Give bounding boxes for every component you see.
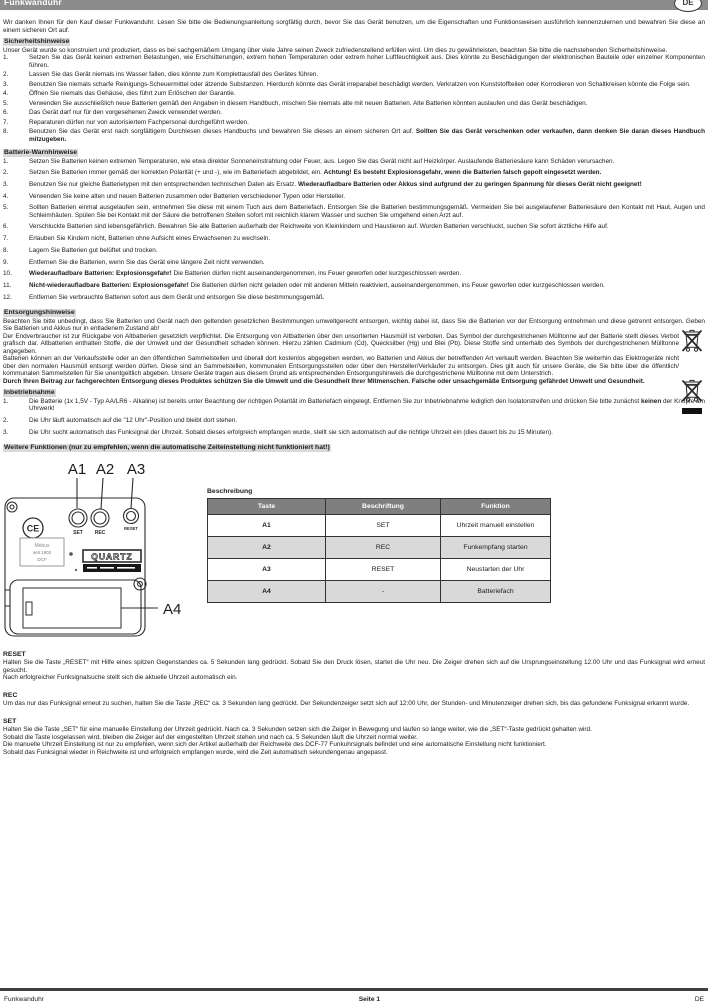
table-row: A2 REC Funkempfang starten bbox=[208, 537, 551, 559]
list-text: Das Gerät darf nur für den vorgesehenen … bbox=[29, 109, 705, 117]
list-text: Nicht-wiederaufladbare Batterien: Explos… bbox=[29, 282, 705, 290]
set-paragraph-1: Halten Sie die Taste „SET“ für eine manu… bbox=[3, 726, 705, 734]
battery-heading: Batterie-Warnhinweise bbox=[3, 149, 78, 157]
text-segment-bold: keinen bbox=[641, 398, 661, 405]
description-table-block: Beschreibung Taste Beschriftung Funktion… bbox=[207, 488, 551, 642]
table-cell: REC bbox=[326, 537, 441, 559]
text-segment: Setzen Sie das Gerät keinen extremen Bel… bbox=[29, 54, 705, 69]
text-segment-bold: Wiederaufladbare Batterien: Explosionsge… bbox=[29, 270, 172, 277]
list-item: 10.Wiederaufladbare Batterien: Explosion… bbox=[3, 270, 705, 278]
table-header-row: Taste Beschriftung Funktion bbox=[208, 499, 551, 515]
list-item: 2.Setzen Sie Batterien immer gemäß der k… bbox=[3, 169, 705, 177]
table-header-cell: Beschriftung bbox=[326, 499, 441, 515]
list-item: 4.Verwenden Sie keine alten und neuen Ba… bbox=[3, 193, 705, 201]
text-segment: Die Batterien dürfen nicht geladen oder … bbox=[189, 282, 605, 289]
list-text: Entfernen Sie die Batterien, wenn Sie da… bbox=[29, 259, 705, 267]
text-segment: Sollten Batterien einmal ausgelaufen sei… bbox=[29, 204, 705, 219]
footer-right-text: DE bbox=[695, 996, 704, 1001]
text-segment: Die Batterien dürfen nicht auseinanderge… bbox=[172, 270, 462, 277]
reset-heading: RESET bbox=[3, 651, 705, 659]
page-title: Funkwanduhr bbox=[4, 0, 62, 7]
safety-section: Sicherheitshinweise Unser Gerät wurde so… bbox=[3, 34, 705, 143]
battery-disposal-crossed-bin-icon bbox=[681, 327, 703, 355]
disposal-paragraph-3: Batterien können an der Verkaufsstelle o… bbox=[3, 355, 705, 378]
text-segment: Reparaturen dürfen nur von autorisiertem… bbox=[29, 119, 249, 126]
text-segment: Benutzen Sie nur gleiche Batterietypen m… bbox=[29, 181, 298, 188]
list-number: 2. bbox=[3, 417, 29, 425]
list-text: Die Uhr läuft automatisch auf die "12 Uh… bbox=[29, 417, 705, 425]
list-number: 10. bbox=[3, 270, 29, 278]
list-item: 1.Die Batterie (1x 1,5V - Typ AA/LR6 - A… bbox=[3, 398, 705, 413]
text-segment: Lagern Sie Batterien gut belüftet und tr… bbox=[29, 247, 158, 254]
disposal-paragraph-1: Beachten Sie bitte unbedingt, dass Sie B… bbox=[3, 318, 705, 333]
text-segment: Erlauben Sie Kindern nicht, Batterien oh… bbox=[29, 235, 270, 242]
list-item: 8.Lagern Sie Batterien gut belüftet und … bbox=[3, 247, 705, 255]
setup-section: Inbetriebnahme 1.Die Batterie (1x 1,5V -… bbox=[3, 385, 705, 436]
language-badge: DE bbox=[674, 0, 702, 12]
footer-left-text: Funkwanduhr bbox=[4, 996, 44, 1001]
text-segment: Entfernen Sie die Batterien, wenn Sie da… bbox=[29, 259, 265, 266]
table-cell: A1 bbox=[208, 515, 326, 537]
list-item: 5.Sollten Batterien einmal ausgelaufen s… bbox=[3, 204, 705, 219]
table-cell: - bbox=[326, 581, 441, 603]
list-item: 2.Lassen Sie das Gerät niemals ins Wasse… bbox=[3, 71, 705, 79]
table-cell: A4 bbox=[208, 581, 326, 603]
text-segment-bold: Nicht-wiederaufladbare Batterien: Explos… bbox=[29, 282, 189, 289]
rec-section: REC Um das nur das Funksignal erneut zu … bbox=[3, 692, 705, 708]
manual-page: Funkwanduhr DE Wir danken Ihnen für den … bbox=[0, 0, 708, 1001]
description-table: Taste Beschriftung Funktion A1 SET Uhrze… bbox=[207, 498, 551, 603]
disposal-heading: Entsorgungshinweise bbox=[3, 309, 76, 317]
list-item: 3.Die Uhr sucht automatisch das Funksign… bbox=[3, 429, 705, 437]
rec-heading: REC bbox=[3, 692, 705, 700]
page-content: Wir danken Ihnen für den Kauf dieser Fun… bbox=[0, 19, 708, 756]
list-item: 1.Setzen Sie das Gerät keinen extremen B… bbox=[3, 54, 705, 69]
list-number: 9. bbox=[3, 259, 29, 267]
sticker-line2-text: seit 1902 bbox=[33, 550, 52, 555]
set-section: SET Halten Sie die Taste „SET“ für eine … bbox=[3, 718, 705, 757]
disposal-section: Entsorgungshinweise Beachten Sie bitte u… bbox=[3, 305, 705, 385]
list-text: Öffnen Sie niemals das Gehäuse, dies füh… bbox=[29, 90, 705, 98]
diagram-label-a1: A1 bbox=[68, 461, 86, 478]
safety-heading: Sicherheitshinweise bbox=[3, 38, 70, 46]
quartz-label: QUARTZ bbox=[91, 551, 132, 561]
table-row: A1 SET Uhrzeit manuell einstellen bbox=[208, 515, 551, 537]
text-segment: Lassen Sie das Gerät niemals ins Wasser … bbox=[29, 71, 318, 78]
text-segment: Setzen Sie Batterien immer gemäß der kor… bbox=[29, 169, 324, 176]
reset-section: RESET Halten Sie die Taste „RESET“ mit H… bbox=[3, 651, 705, 682]
table-row: A3 RESET Neustarten der Uhr bbox=[208, 559, 551, 581]
text-segment-bold: Wiederaufladbare Batterien oder Akkus si… bbox=[298, 181, 642, 188]
list-item: 7.Reparaturen dürfen nur von autorisiert… bbox=[3, 119, 705, 127]
table-header-cell: Funktion bbox=[441, 499, 551, 515]
list-number: 3. bbox=[3, 181, 29, 189]
list-text: Reparaturen dürfen nur von autorisiertem… bbox=[29, 119, 705, 127]
list-text: Wiederaufladbare Batterien: Explosionsge… bbox=[29, 270, 705, 278]
text-segment: Verwenden Sie ausschließlich neue Batter… bbox=[29, 100, 587, 107]
list-text: Entfernen Sie verbrauchte Batterien sofo… bbox=[29, 294, 705, 302]
list-number: 1. bbox=[3, 54, 29, 69]
set-heading: SET bbox=[3, 718, 705, 726]
list-number: 8. bbox=[3, 247, 29, 255]
list-number: 12. bbox=[3, 294, 29, 302]
setup-heading: Inbetriebnahme bbox=[3, 389, 56, 397]
battery-warnings-section: Batterie-Warnhinweise 1.Setzen Sie Batte… bbox=[3, 145, 705, 301]
list-number: 11. bbox=[3, 282, 29, 290]
set-paragraph-2: Sobald die Taste losgelassen wird, bleib… bbox=[3, 734, 705, 742]
sticker-line3-text: DCF bbox=[37, 557, 46, 562]
weee-underline-bar-icon bbox=[682, 408, 702, 414]
list-number: 1. bbox=[3, 398, 29, 413]
list-item: 12.Entfernen Sie verbrauchte Batterien s… bbox=[3, 294, 705, 302]
list-item: 3.Benutzen Sie niemals scharfe Reinigung… bbox=[3, 81, 705, 89]
list-number: 3. bbox=[3, 429, 29, 437]
list-text: Benutzen Sie das Gerät erst nach sorgfäl… bbox=[29, 128, 705, 143]
list-item: 6.Verschluckte Batterien sind lebensgefä… bbox=[3, 223, 705, 231]
list-item: 7.Erlauben Sie Kindern nicht, Batterien … bbox=[3, 235, 705, 243]
disposal-paragraph-2: Der Endverbraucher ist zur Rückgabe von … bbox=[3, 333, 705, 356]
reset-paragraph-2: Nach erfolgreicher Funksignalsuche stell… bbox=[3, 674, 705, 682]
table-cell: A2 bbox=[208, 537, 326, 559]
list-number: 6. bbox=[3, 109, 29, 117]
text-segment: Das Gerät darf nur für den vorgesehenen … bbox=[29, 109, 222, 116]
list-number: 7. bbox=[3, 119, 29, 127]
table-cell: RESET bbox=[326, 559, 441, 581]
rec-button-label: REC bbox=[95, 530, 106, 536]
list-number: 4. bbox=[3, 193, 29, 201]
list-number: 8. bbox=[3, 128, 29, 143]
list-text: Verschluckte Batterien sind lebensgefähr… bbox=[29, 223, 705, 231]
list-text: Benutzen Sie nur gleiche Batterietypen m… bbox=[29, 181, 705, 189]
diagram-label-a2: A2 bbox=[96, 461, 114, 478]
text-segment-bold: Achtung! Es besteht Explosionsgefahr, we… bbox=[324, 169, 602, 176]
table-row: A4 - Batteriefach bbox=[208, 581, 551, 603]
table-cell: Uhrzeit manuell einstellen bbox=[441, 515, 551, 537]
table-cell: Neustarten der Uhr bbox=[441, 559, 551, 581]
ce-mark-icon: CE bbox=[27, 523, 40, 533]
text-segment: Entfernen Sie verbrauchte Batterien sofo… bbox=[29, 294, 325, 301]
list-number: 6. bbox=[3, 223, 29, 231]
page-header-bar: Funkwanduhr DE bbox=[0, 0, 708, 10]
list-item: 11.Nicht-wiederaufladbare Batterien: Exp… bbox=[3, 282, 705, 290]
list-text: Erlauben Sie Kindern nicht, Batterien oh… bbox=[29, 235, 705, 243]
list-text: Setzen Sie Batterien keinen extremen Tem… bbox=[29, 158, 705, 166]
footer-row: Funkwanduhr Seite 1 DE bbox=[0, 991, 708, 1001]
sticker-brand-text: Mebus bbox=[34, 543, 50, 549]
list-item: 6.Das Gerät darf nur für den vorgesehene… bbox=[3, 109, 705, 117]
diagram-and-table-row: A1 A2 A3 A4 CE SET REC RESET Mebus seit … bbox=[3, 458, 705, 642]
list-text: Verwenden Sie keine alten und neuen Batt… bbox=[29, 193, 705, 201]
reset-button-label: RESET bbox=[124, 526, 138, 531]
set-button-label: SET bbox=[73, 530, 83, 536]
diagram-label-a3: A3 bbox=[127, 461, 145, 478]
list-number: 5. bbox=[3, 100, 29, 108]
list-text: Die Batterie (1x 1,5V - Typ AA/LR6 - Alk… bbox=[29, 398, 705, 413]
weee-crossed-bin-icon bbox=[681, 377, 703, 405]
list-item: 4.Öffnen Sie niemals das Gehäuse, dies f… bbox=[3, 90, 705, 98]
text-segment: Verwenden Sie keine alten und neuen Batt… bbox=[29, 193, 345, 200]
list-number: 7. bbox=[3, 235, 29, 243]
list-text: Setzen Sie Batterien immer gemäß der kor… bbox=[29, 169, 705, 177]
more-functions-heading-wrap: Weitere Funktionen (nur zu empfehlen, we… bbox=[3, 440, 705, 453]
set-paragraph-4: Sobald das Funksignal wieder in Reichwei… bbox=[3, 749, 705, 757]
list-item: 5.Verwenden Sie ausschließlich neue Batt… bbox=[3, 100, 705, 108]
text-segment: Verschluckte Batterien sind lebensgefähr… bbox=[29, 223, 609, 230]
text-segment: Öffnen Sie niemals das Gehäuse, dies füh… bbox=[29, 90, 236, 97]
list-text: Lagern Sie Batterien gut belüftet und tr… bbox=[29, 247, 705, 255]
list-number: 2. bbox=[3, 71, 29, 79]
more-functions-heading: Weitere Funktionen (nur zu empfehlen, we… bbox=[3, 444, 331, 452]
rec-paragraph-1: Um das nur das Funksignal erneut zu such… bbox=[3, 700, 705, 708]
diagram-label-a4: A4 bbox=[163, 601, 181, 618]
clock-movement-diagram: A1 A2 A3 A4 CE SET REC RESET Mebus seit … bbox=[3, 458, 203, 642]
text-segment: Benutzen Sie niemals scharfe Reinigungs-… bbox=[29, 81, 691, 88]
list-text: Setzen Sie das Gerät keinen extremen Bel… bbox=[29, 54, 705, 69]
list-number: 5. bbox=[3, 204, 29, 219]
list-number: 4. bbox=[3, 90, 29, 98]
list-item: 9.Entfernen Sie die Batterien, wenn Sie … bbox=[3, 259, 705, 267]
table-header-cell: Taste bbox=[208, 499, 326, 515]
list-text: Benutzen Sie niemals scharfe Reinigungs-… bbox=[29, 81, 705, 89]
list-text: Lassen Sie das Gerät niemals ins Wasser … bbox=[29, 71, 705, 79]
list-item: 2.Die Uhr läuft automatisch auf die "12 … bbox=[3, 417, 705, 425]
list-number: 2. bbox=[3, 169, 29, 177]
list-text: Sollten Batterien einmal ausgelaufen sei… bbox=[29, 204, 705, 219]
list-item: 3.Benutzen Sie nur gleiche Batterietypen… bbox=[3, 181, 705, 189]
list-number: 3. bbox=[3, 81, 29, 89]
text-segment: Die Uhr läuft automatisch auf die "12 Uh… bbox=[29, 417, 237, 424]
list-item: 8.Benutzen Sie das Gerät erst nach sorgf… bbox=[3, 128, 705, 143]
table-cell: Batteriefach bbox=[441, 581, 551, 603]
set-paragraph-3: Die manuelle Uhrzeit Einstellung ist nur… bbox=[3, 741, 705, 749]
reset-paragraph-1: Halten Sie die Taste „RESET“ mit Hilfe e… bbox=[3, 659, 705, 674]
page-footer: Funkwanduhr Seite 1 DE bbox=[0, 988, 708, 1001]
disposal-paragraph-bold: Durch Ihren Beitrag zur fachgerechten En… bbox=[3, 378, 705, 386]
text-segment: Die Batterie (1x 1,5V - Typ AA/LR6 - Alk… bbox=[29, 398, 641, 405]
intro-paragraph: Wir danken Ihnen für den Kauf dieser Fun… bbox=[3, 19, 705, 34]
list-text: Verwenden Sie ausschließlich neue Batter… bbox=[29, 100, 705, 108]
list-text: Die Uhr sucht automatisch das Funksignal… bbox=[29, 429, 705, 437]
safety-intro: Unser Gerät wurde so konstruiert und pro… bbox=[3, 47, 705, 55]
footer-page-number: Seite 1 bbox=[359, 996, 380, 1001]
list-item: 1.Setzen Sie Batterien keinen extremen T… bbox=[3, 158, 705, 166]
text-segment: Setzen Sie Batterien keinen extremen Tem… bbox=[29, 158, 614, 165]
table-cell: Funkempfang starten bbox=[441, 537, 551, 559]
table-cell: A3 bbox=[208, 559, 326, 581]
text-segment: Benutzen Sie das Gerät erst nach sorgfäl… bbox=[29, 128, 416, 135]
text-segment: Die Uhr sucht automatisch das Funksignal… bbox=[29, 429, 553, 436]
list-number: 1. bbox=[3, 158, 29, 166]
table-cell: SET bbox=[326, 515, 441, 537]
table-title: Beschreibung bbox=[207, 488, 551, 496]
